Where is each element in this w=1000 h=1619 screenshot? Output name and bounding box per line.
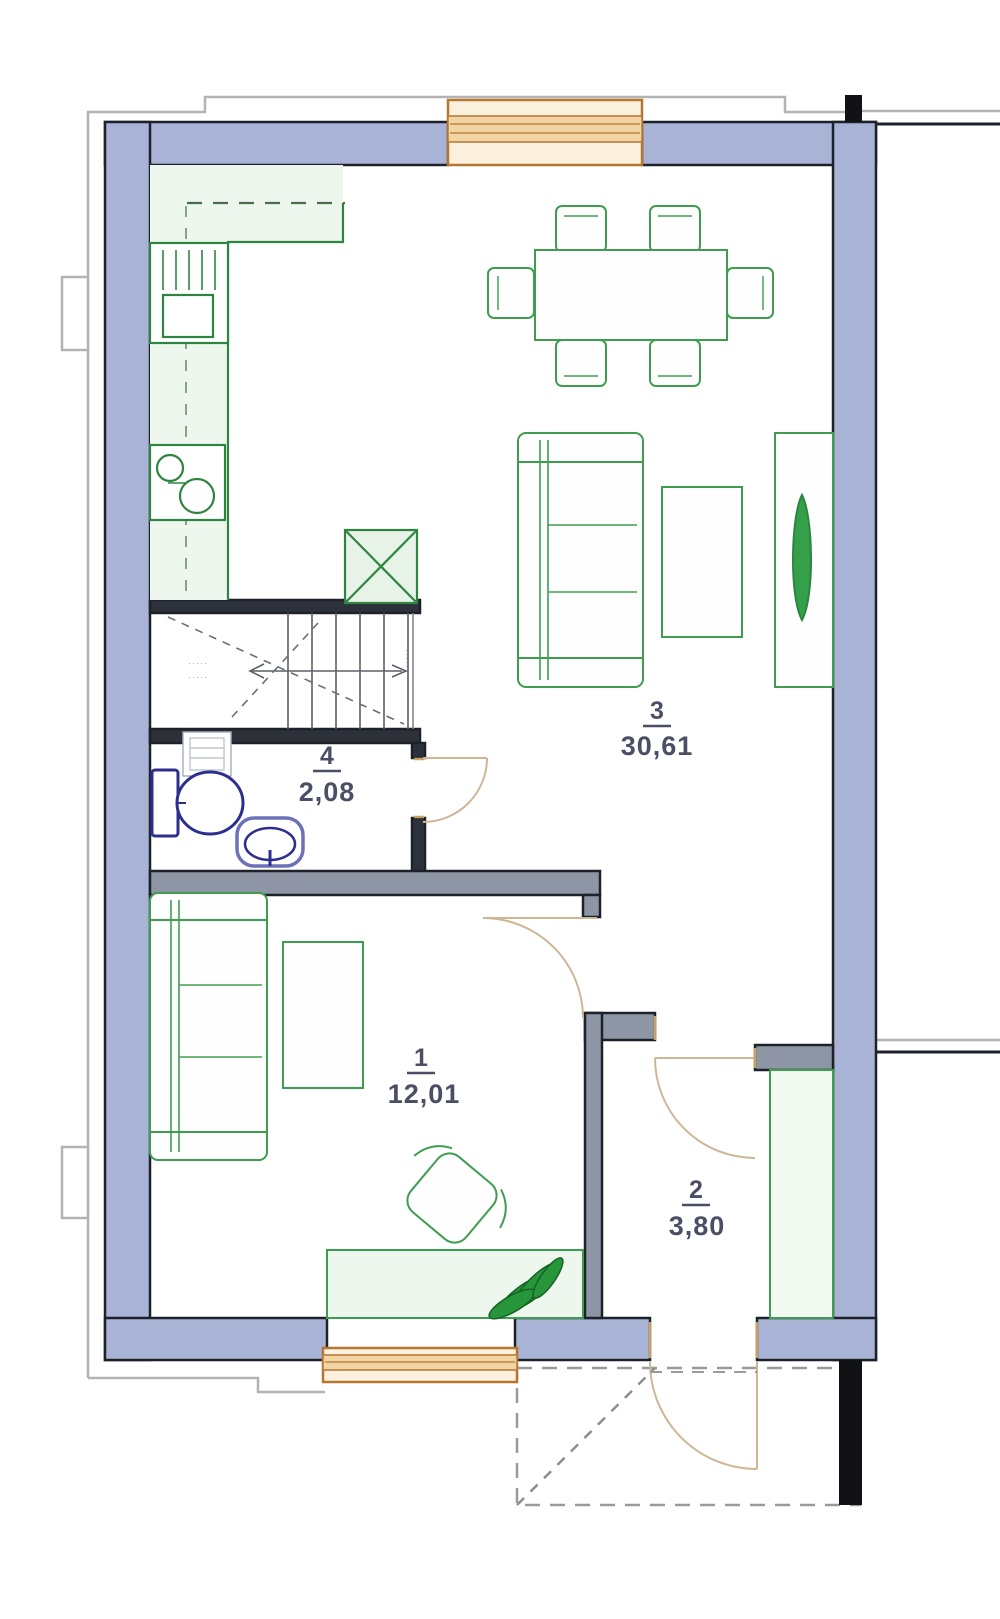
wall-bottom-left-seg (105, 1318, 327, 1360)
dining-chair (488, 268, 534, 318)
window-bottom (323, 1348, 517, 1382)
porch-outline (517, 1368, 860, 1505)
dining-table (535, 250, 727, 340)
kitchen-counter-edge (228, 203, 343, 600)
floor-plan: ····· ····· ····· (0, 0, 1000, 1619)
porch-diagonal (517, 1368, 655, 1505)
furniture-living (488, 206, 833, 687)
label-room-hall: 2 3,80 (669, 1176, 726, 1241)
stairs-note-left-2: ····· (188, 672, 208, 682)
wall-hall-right-stub (755, 1045, 833, 1070)
dining-chair (556, 340, 606, 386)
stove (150, 243, 228, 343)
window-top (448, 100, 642, 165)
wall-left (105, 122, 150, 1360)
stairs-note-right: ····· (401, 648, 411, 668)
left-wall-pilaster-bottom (62, 1147, 88, 1218)
floor-plan-page: ····· ····· ····· (0, 0, 1000, 1619)
party-wall-bottom (839, 1360, 862, 1505)
dining-chair (727, 268, 773, 318)
label-room-bedroom: 1 12,01 (388, 1044, 461, 1109)
bathroom-door-arc (423, 758, 487, 822)
room-hall-number: 2 (689, 1176, 703, 1204)
kitchen-sink-basin-large (180, 479, 214, 513)
neighbor-wall-lines (876, 124, 1000, 1052)
wall-bedroom-top (150, 871, 600, 895)
bedroom-sofa (150, 893, 267, 1160)
toilet-tank (152, 770, 178, 836)
outer-contour-bottom (88, 1378, 325, 1392)
wall-top-left-seg (105, 122, 448, 165)
bedroom-sofa-body (150, 893, 267, 1160)
room-bathroom-number: 4 (320, 742, 334, 770)
hall-door-arc (655, 1058, 755, 1158)
bathroom-sink (237, 818, 303, 866)
room-bedroom-area: 12,01 (388, 1079, 461, 1109)
washing-machine (183, 732, 231, 776)
dining-chair (650, 340, 700, 386)
kitchen-sink-basin-small (157, 455, 183, 481)
washing-machine-inner (190, 738, 224, 770)
room-living-number: 3 (650, 697, 664, 725)
coffee-table (662, 487, 742, 637)
stairs-note-left: ····· (188, 658, 208, 668)
room-hall-area: 3,80 (669, 1211, 726, 1241)
label-room-living: 3 30,61 (621, 697, 694, 761)
porch (517, 1368, 860, 1505)
stairs-break-line-2 (232, 623, 318, 717)
wall-bathroom-right-top (412, 743, 425, 758)
kitchen-counter-fill (150, 165, 343, 600)
dining-chair (556, 206, 606, 252)
stove-oven (163, 295, 213, 337)
dining-chair (650, 206, 700, 252)
room-bathroom-area: 2,08 (299, 777, 356, 807)
office-chair-seat (401, 1147, 502, 1248)
office-chair (386, 1133, 519, 1262)
window-top-glass (448, 116, 642, 142)
bedroom-door-arc (483, 918, 583, 1018)
room-bedroom-number: 1 (414, 1044, 428, 1072)
kitchen-sink (150, 445, 225, 520)
living-sofa-body (518, 433, 643, 687)
furniture-bedroom (150, 893, 583, 1324)
hall-wardrobe (770, 1070, 833, 1318)
label-room-bathroom: 4 2,08 (299, 742, 356, 807)
left-wall-pilaster-top (62, 277, 88, 350)
entrance-door-arc (650, 1362, 757, 1469)
room-living-area: 30,61 (621, 731, 694, 761)
toilet (152, 770, 243, 836)
kitchen (150, 165, 417, 603)
bedroom-side-table (283, 942, 363, 1088)
living-sofa (518, 433, 643, 687)
party-wall-tick-top (845, 95, 862, 122)
wall-bottom-right-seg (757, 1318, 876, 1360)
wall-hall-left (585, 1013, 602, 1318)
kitchen-duct-box (345, 530, 417, 603)
toilet-bowl (177, 772, 243, 834)
wall-right (833, 122, 876, 1360)
wall-bedroom-door-stub (583, 895, 600, 917)
tv-screen (793, 495, 811, 620)
staircase: ····· ····· ····· (168, 613, 413, 729)
wall-bottom-mid-seg (515, 1318, 650, 1360)
bathroom-fixtures (152, 732, 303, 866)
